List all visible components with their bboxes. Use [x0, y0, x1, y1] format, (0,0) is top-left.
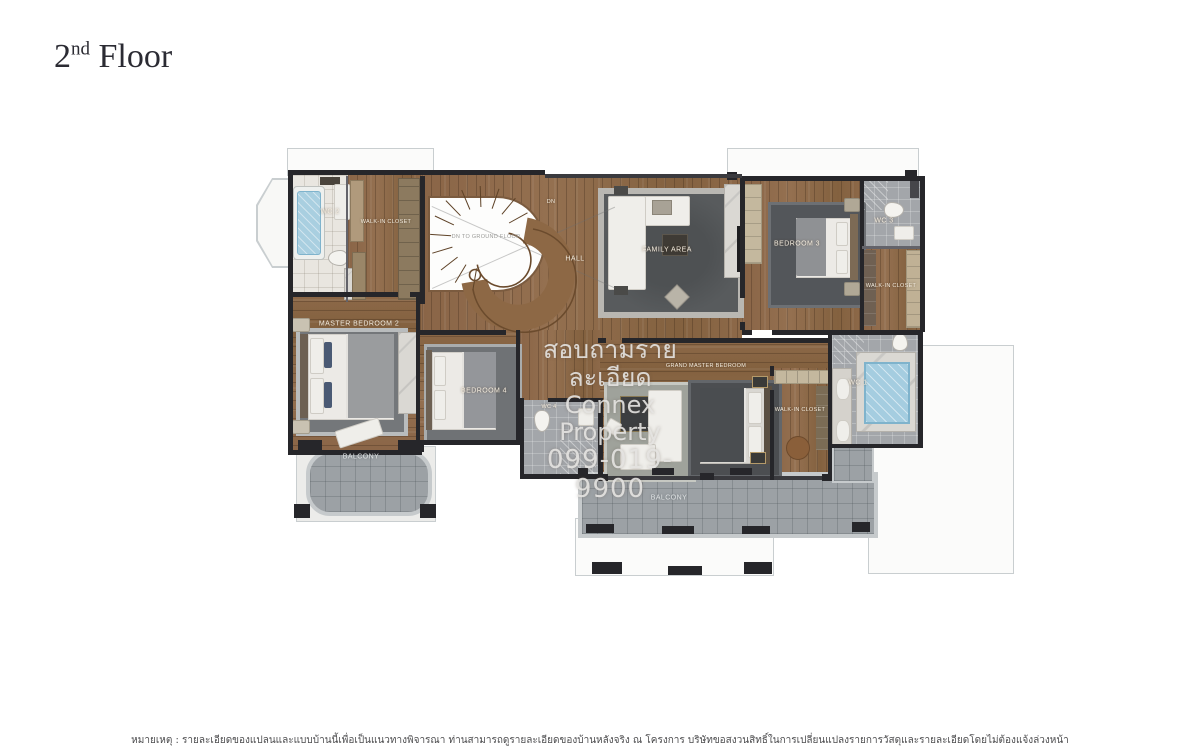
pillar	[852, 522, 870, 532]
nightstand	[844, 282, 860, 296]
balcony-arm-deck	[832, 445, 874, 483]
wall	[918, 332, 923, 446]
room-label-walkin-right: WALK-IN CLOSET	[866, 283, 916, 289]
bed3-pillow	[836, 250, 848, 274]
wall	[288, 170, 545, 175]
pillar	[294, 504, 310, 518]
disclaimer-text: หมายเหตุ : รายละเอียดของแปลนและแบบบ้านนี…	[0, 733, 1200, 748]
pillar	[668, 566, 702, 575]
wall-window	[545, 174, 742, 178]
toilet	[892, 333, 908, 351]
wall	[770, 390, 774, 480]
mb2-headboard	[300, 334, 308, 418]
room-label-bedroom4: BEDROOM 4	[461, 388, 507, 395]
wall	[860, 178, 864, 332]
room-label-master-bedroom2: MASTER BEDROOM 2	[319, 321, 399, 328]
room-label-balcony-left: BALCONY	[343, 454, 380, 461]
bed4-pillow	[434, 356, 446, 386]
wall	[770, 366, 774, 376]
vanity-sink	[836, 420, 850, 442]
bed3-pillow	[836, 222, 848, 246]
page-title: 2nd Floor	[54, 38, 172, 76]
pillar	[592, 562, 622, 574]
wall	[416, 297, 420, 455]
room-label-walkin-master: WALK-IN CLOSET	[775, 407, 825, 413]
pillar	[586, 524, 614, 533]
wardrobe-cabinet	[744, 184, 762, 264]
toilet	[328, 250, 348, 266]
wall	[740, 178, 745, 298]
jacuzzi-water	[864, 362, 910, 424]
nightstand	[844, 198, 860, 212]
pillar	[662, 526, 694, 534]
armchair	[652, 200, 672, 215]
wall	[288, 292, 398, 297]
watermark-line3: 099-019-9900	[512, 446, 708, 504]
wall	[742, 330, 752, 335]
watermark-line1: สอบถามรายละเอียด	[512, 336, 708, 392]
room-label-wc1: WC 1	[848, 380, 867, 387]
watermark: สอบถามรายละเอียด Connex Property 099-019…	[512, 336, 708, 504]
nightstand	[752, 376, 768, 388]
wc3-cabinet	[910, 180, 919, 198]
closet-shelf	[350, 180, 364, 242]
wall	[420, 330, 506, 335]
wall-partition	[346, 176, 348, 302]
room-label-walkin-top: WALK-IN CLOSET	[361, 219, 411, 225]
stair-inner-rail	[477, 233, 531, 287]
wall	[920, 176, 925, 332]
watermark-line2: Connex Property	[512, 392, 708, 446]
wall	[742, 176, 924, 181]
nightstand	[750, 452, 766, 464]
bathtub-water	[297, 191, 321, 255]
wall	[830, 444, 923, 448]
wall	[416, 440, 520, 445]
mb2-blanket	[346, 334, 394, 418]
wall-partition	[862, 246, 920, 249]
bed4-pillow	[434, 390, 446, 420]
wall	[420, 176, 425, 304]
floor-plan-page: 2nd Floor	[0, 0, 1200, 750]
mb2-pillow	[310, 378, 324, 414]
wall	[772, 330, 922, 335]
room-label-family-area: FAMILY AREA	[642, 247, 692, 254]
room-label-stair-note: DN TO GROUND FLOOR	[452, 234, 521, 240]
floor-number: 2	[54, 38, 71, 75]
room-label-wc3: WC 3	[874, 218, 893, 225]
closet-cabinet	[774, 370, 830, 384]
nightstand	[292, 420, 310, 434]
mb2-accent-pillow	[324, 342, 332, 368]
nightstand	[292, 318, 310, 332]
ordinal-suffix: nd	[71, 39, 90, 60]
wall	[740, 322, 745, 330]
floor-word: Floor	[99, 38, 173, 75]
mb2-marble-wardrobe	[398, 332, 416, 412]
wc3-sink	[894, 226, 914, 240]
pillar	[742, 526, 770, 534]
pillar	[420, 504, 436, 518]
pillar	[744, 562, 772, 574]
side-table	[614, 186, 628, 195]
bed3-headboard	[850, 214, 858, 280]
gm-pillow	[748, 392, 762, 424]
room-label-wc2: WC 2	[320, 209, 339, 216]
pillar	[730, 468, 752, 475]
room-label-dn: DN	[547, 199, 556, 205]
room-label-bedroom3: BEDROOM 3	[774, 241, 820, 248]
mb2-accent-pillow	[324, 382, 332, 408]
closet-wardrobe	[398, 178, 420, 300]
sofa-left	[608, 196, 646, 290]
wall	[288, 170, 293, 455]
room-label-hall: HALL	[565, 256, 584, 263]
side-table	[614, 286, 628, 295]
mb2-pillow	[310, 338, 324, 374]
closet-pouf	[786, 436, 810, 460]
wall	[828, 332, 832, 480]
